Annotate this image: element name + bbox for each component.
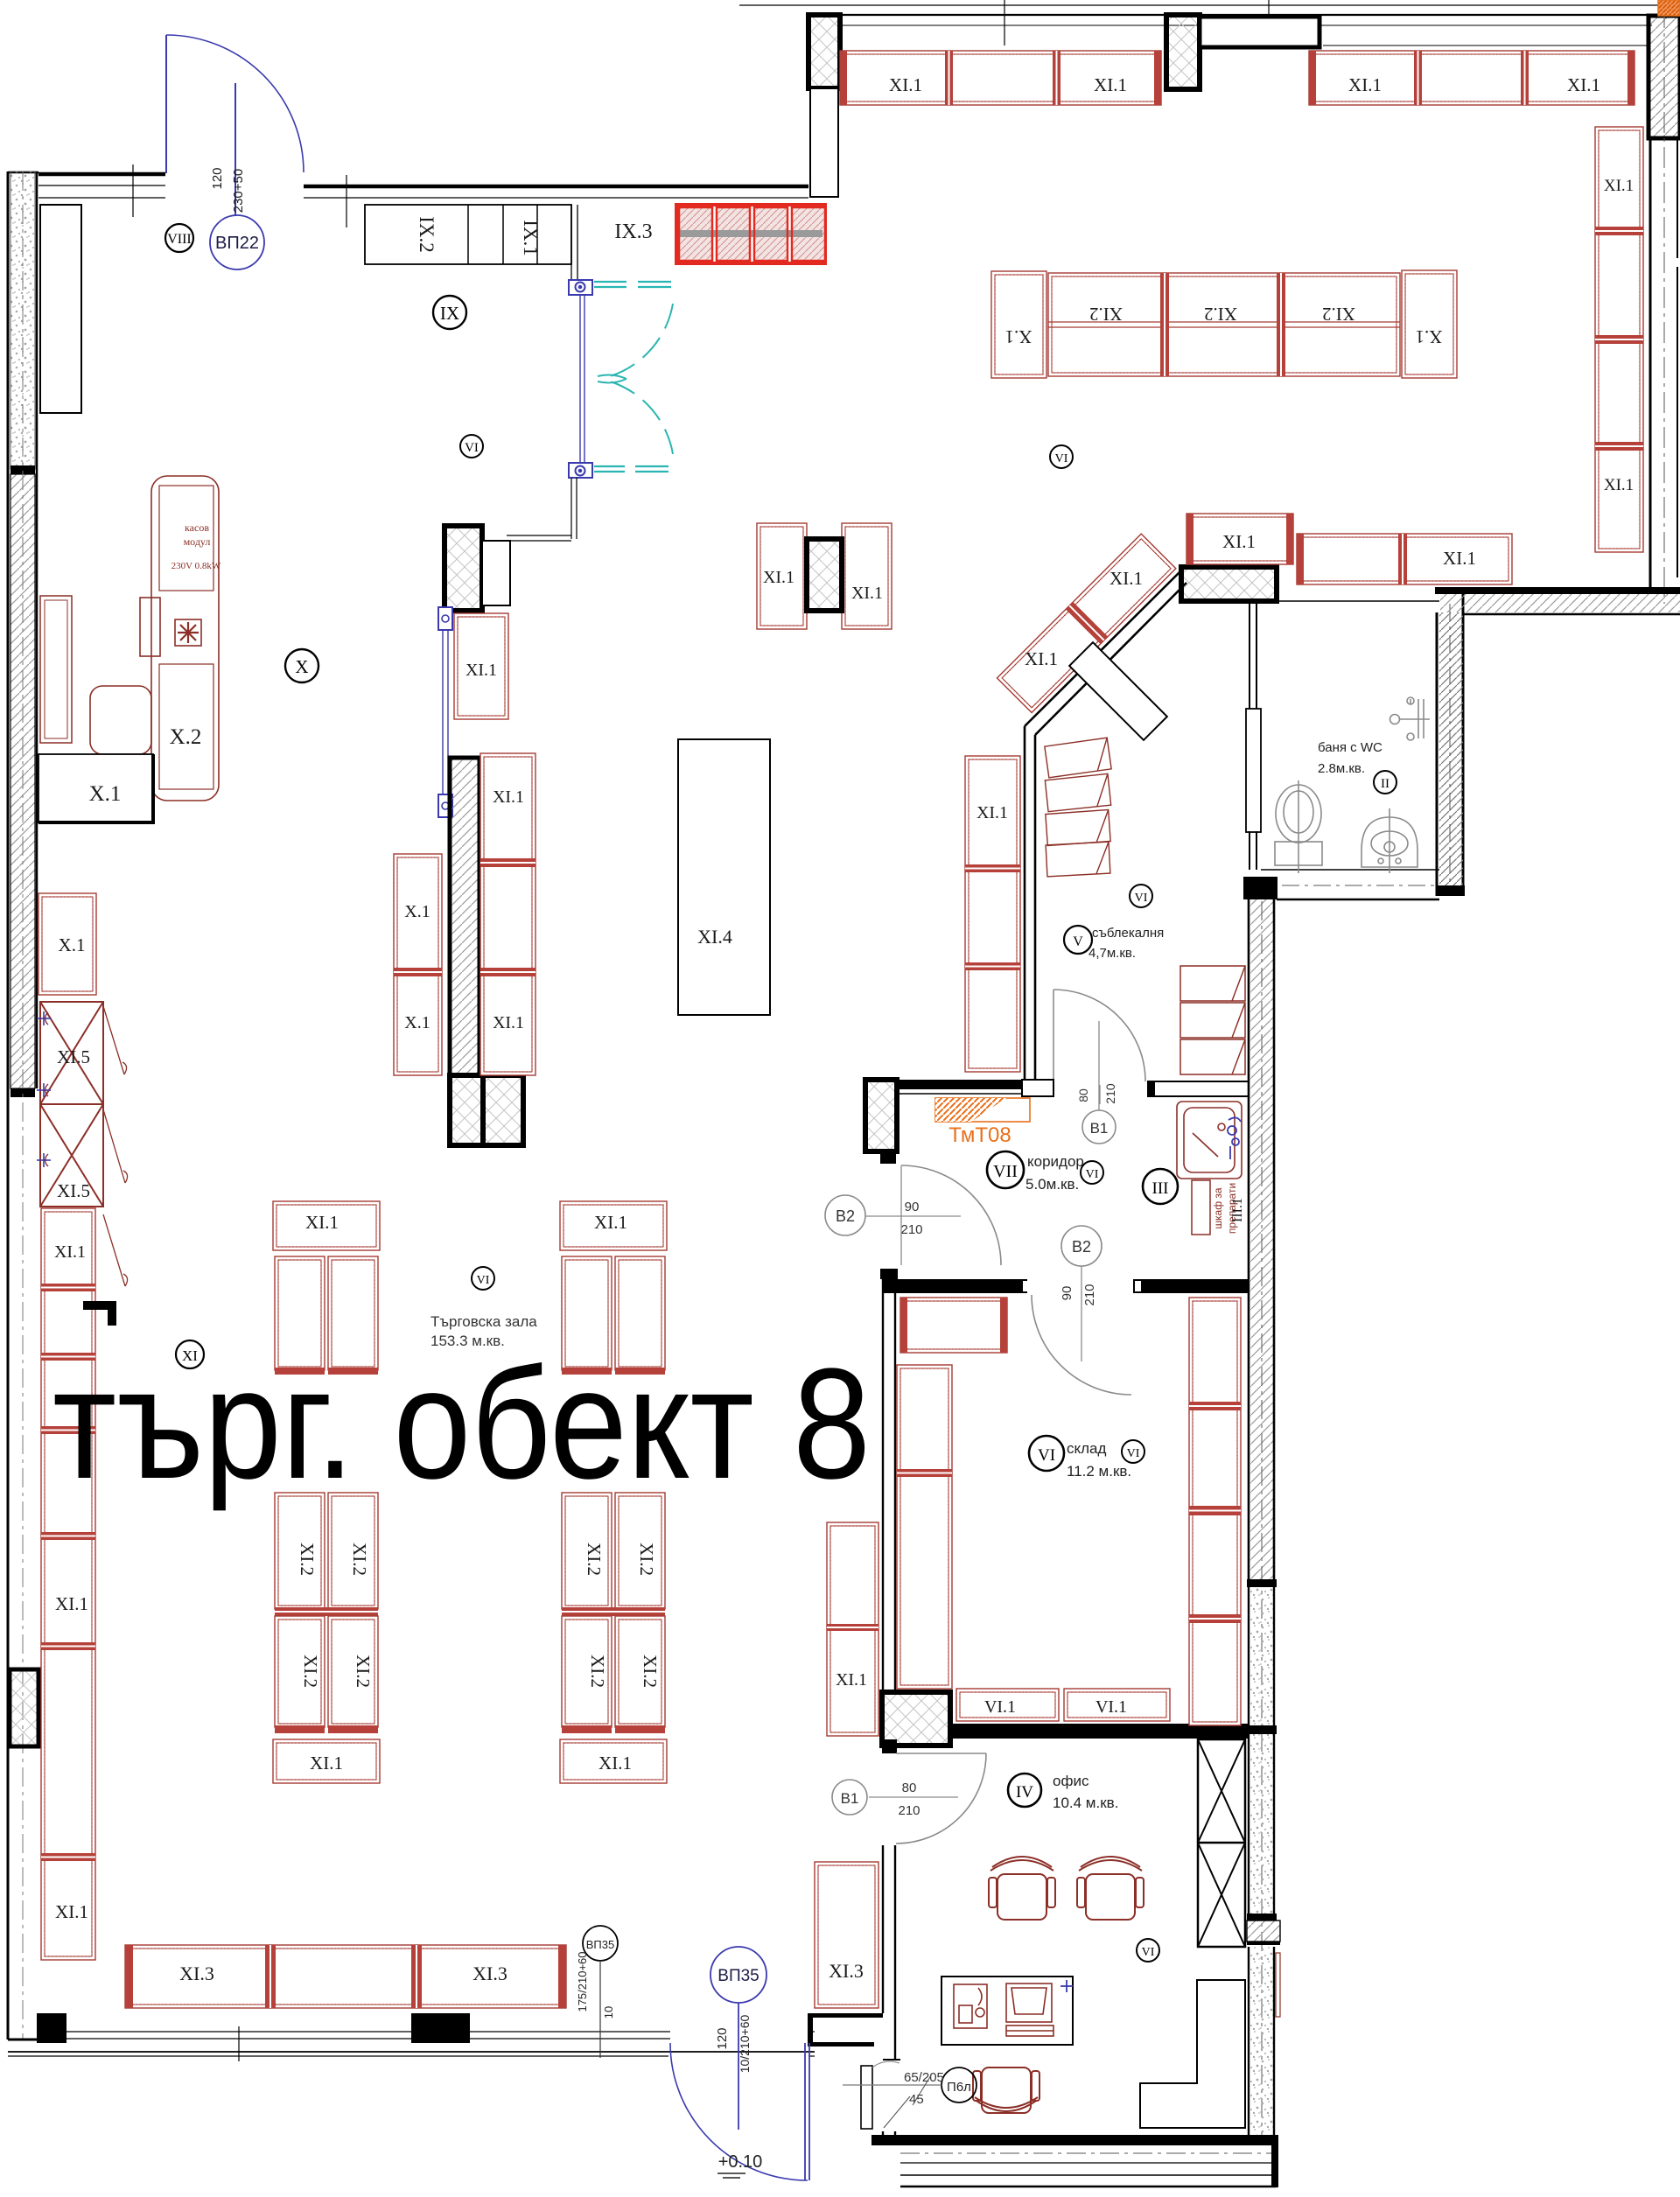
svg-text:X: X bbox=[295, 656, 308, 677]
svg-text:153.3 м.кв.: 153.3 м.кв. bbox=[430, 1333, 505, 1349]
svg-text:XI.1: XI.1 bbox=[1348, 74, 1382, 95]
svg-text:230+50: 230+50 bbox=[231, 169, 246, 213]
svg-text:търг. обект 8: търг. обект 8 bbox=[52, 1336, 871, 1512]
svg-text:XI.1: XI.1 bbox=[1025, 648, 1058, 669]
svg-text:XI.1: XI.1 bbox=[1443, 548, 1476, 569]
svg-text:90: 90 bbox=[905, 1200, 920, 1214]
svg-text:VI.1: VI.1 bbox=[1095, 1697, 1127, 1717]
svg-text:XI.1: XI.1 bbox=[465, 661, 497, 680]
svg-text:X.1: X.1 bbox=[89, 782, 122, 806]
svg-text:XI.2: XI.2 bbox=[636, 1543, 657, 1576]
svg-text:XI.1: XI.1 bbox=[1567, 74, 1600, 95]
svg-text:VI: VI bbox=[1038, 1446, 1055, 1465]
svg-text:офис: офис bbox=[1053, 1773, 1089, 1789]
svg-text:XI.1: XI.1 bbox=[1109, 568, 1143, 589]
svg-text:VI.1: VI.1 bbox=[984, 1697, 1016, 1717]
svg-text:XI.1: XI.1 bbox=[493, 787, 524, 807]
svg-text:120: 120 bbox=[715, 2027, 730, 2049]
svg-text:VIII: VIII bbox=[167, 232, 192, 247]
svg-text:П6л: П6л bbox=[947, 2080, 971, 2095]
svg-text:касов: касов bbox=[185, 521, 209, 534]
svg-text:X.1: X.1 bbox=[1005, 326, 1032, 347]
svg-text:XI.2: XI.2 bbox=[1204, 304, 1237, 325]
svg-text:IV: IV bbox=[1016, 1783, 1033, 1802]
svg-text:VI: VI bbox=[477, 1274, 490, 1287]
svg-text:ВП22: ВП22 bbox=[215, 234, 259, 253]
svg-text:XI.2: XI.2 bbox=[297, 1543, 318, 1576]
svg-text:IX: IX bbox=[440, 303, 459, 324]
svg-text:XI.2: XI.2 bbox=[640, 1655, 661, 1688]
svg-text:XI.1: XI.1 bbox=[763, 568, 794, 587]
svg-text:11.2 м.кв.: 11.2 м.кв. bbox=[1067, 1463, 1131, 1480]
svg-text:X.1: X.1 bbox=[404, 1013, 430, 1032]
svg-text:Търговска зала: Търговска зала bbox=[430, 1313, 537, 1330]
svg-text:V: V bbox=[1073, 934, 1083, 949]
svg-text:10.4 м.кв.: 10.4 м.кв. bbox=[1053, 1795, 1118, 1811]
svg-text:VI: VI bbox=[1135, 892, 1148, 905]
svg-text:XI.1: XI.1 bbox=[1604, 476, 1634, 494]
svg-text:4,7м.кв.: 4,7м.кв. bbox=[1088, 946, 1136, 961]
svg-text:III.1: III.1 bbox=[1230, 1198, 1245, 1222]
svg-text:XI.3: XI.3 bbox=[179, 1963, 214, 1984]
svg-text:210: 210 bbox=[898, 1803, 920, 1818]
svg-text:B1: B1 bbox=[1090, 1120, 1109, 1137]
svg-text:XI.2: XI.2 bbox=[300, 1655, 321, 1688]
svg-text:5.0м.кв.: 5.0м.кв. bbox=[1025, 1176, 1079, 1193]
svg-text:XI.1: XI.1 bbox=[1222, 531, 1256, 552]
svg-text:80: 80 bbox=[902, 1781, 917, 1795]
svg-text:80: 80 bbox=[1076, 1088, 1090, 1102]
svg-text:ТмТ08: ТмТ08 bbox=[948, 1123, 1011, 1147]
svg-text:XI.3: XI.3 bbox=[472, 1963, 507, 1984]
svg-text:модул: модул bbox=[184, 535, 211, 548]
svg-text:X.1: X.1 bbox=[59, 934, 86, 955]
svg-text:210: 210 bbox=[1082, 1284, 1097, 1305]
svg-text:IX.2: IX.2 bbox=[416, 216, 437, 253]
svg-text:коридор: коридор bbox=[1027, 1153, 1084, 1170]
svg-text:VI: VI bbox=[1055, 452, 1068, 465]
svg-text:XI.1: XI.1 bbox=[55, 1901, 88, 1922]
svg-text:B2: B2 bbox=[836, 1207, 855, 1225]
svg-text:2.8м.кв.: 2.8м.кв. bbox=[1318, 761, 1365, 776]
svg-text:VI: VI bbox=[1142, 1946, 1155, 1959]
svg-text:120: 120 bbox=[210, 167, 225, 189]
svg-text:175/210+60: 175/210+60 bbox=[576, 1951, 589, 2012]
svg-text:X.1: X.1 bbox=[404, 902, 430, 921]
svg-text:XI.1: XI.1 bbox=[594, 1212, 627, 1233]
svg-text:VII: VII bbox=[993, 1162, 1018, 1181]
svg-text:XI.1: XI.1 bbox=[1604, 177, 1634, 195]
svg-text:X.2: X.2 bbox=[170, 725, 202, 749]
svg-text:XI.5: XI.5 bbox=[57, 1046, 90, 1067]
svg-text:90: 90 bbox=[1060, 1286, 1074, 1301]
svg-text:B2: B2 bbox=[1072, 1238, 1091, 1256]
svg-text:ВП35: ВП35 bbox=[586, 1938, 614, 1951]
svg-text:XI.1: XI.1 bbox=[310, 1753, 343, 1774]
svg-text:X.1: X.1 bbox=[1416, 326, 1443, 347]
svg-text:VI: VI bbox=[1086, 1168, 1099, 1181]
svg-text:ВП35: ВП35 bbox=[717, 1967, 759, 1985]
svg-text:IX.1: IX.1 bbox=[520, 220, 542, 256]
svg-text:210: 210 bbox=[1103, 1083, 1117, 1104]
svg-text:B1: B1 bbox=[841, 1790, 859, 1807]
svg-text:65/205: 65/205 bbox=[904, 2070, 944, 2085]
svg-text:баня с WC: баня с WC bbox=[1318, 740, 1382, 755]
svg-text:II: II bbox=[1381, 777, 1389, 791]
svg-text:XI.2: XI.2 bbox=[1089, 304, 1123, 325]
svg-text:10/210+60: 10/210+60 bbox=[738, 2015, 752, 2074]
svg-text:+0.10: +0.10 bbox=[718, 2152, 763, 2172]
svg-text:XI.4: XI.4 bbox=[697, 926, 732, 948]
svg-text:230V 0.8kW: 230V 0.8kW bbox=[171, 561, 221, 571]
svg-text:XI.2: XI.2 bbox=[353, 1655, 374, 1688]
svg-text:XI.5: XI.5 bbox=[57, 1180, 90, 1201]
svg-text:XI.2: XI.2 bbox=[1322, 304, 1355, 325]
svg-text:XI.1: XI.1 bbox=[305, 1212, 339, 1233]
svg-text:XI.1: XI.1 bbox=[55, 1593, 88, 1614]
svg-text:XI.1: XI.1 bbox=[851, 584, 883, 603]
svg-text:XI.3: XI.3 bbox=[829, 1960, 864, 1982]
svg-text:XI.2: XI.2 bbox=[584, 1543, 605, 1576]
svg-text:VI: VI bbox=[465, 441, 479, 455]
svg-text:10: 10 bbox=[602, 2006, 615, 2019]
svg-text:XI.1: XI.1 bbox=[598, 1753, 632, 1774]
svg-text:XI.2: XI.2 bbox=[349, 1543, 370, 1576]
svg-text:XI.2: XI.2 bbox=[587, 1655, 608, 1688]
svg-text:шкаф за: шкаф за bbox=[1212, 1187, 1224, 1229]
svg-text:210: 210 bbox=[900, 1222, 922, 1237]
svg-text:XI.1: XI.1 bbox=[1094, 74, 1127, 95]
svg-text:XI.1: XI.1 bbox=[54, 1242, 86, 1262]
svg-text:VI: VI bbox=[1127, 1447, 1140, 1460]
svg-text:IX.3: IX.3 bbox=[614, 220, 652, 243]
svg-text:склад: склад bbox=[1067, 1440, 1107, 1457]
svg-text:XI.1: XI.1 bbox=[836, 1670, 867, 1690]
svg-text:III: III bbox=[1152, 1179, 1169, 1198]
svg-text:съблекалня: съблекалня bbox=[1092, 926, 1164, 941]
svg-text:XI.1: XI.1 bbox=[889, 74, 922, 95]
svg-text:XI.1: XI.1 bbox=[976, 803, 1008, 822]
svg-text:XI.1: XI.1 bbox=[493, 1013, 524, 1032]
